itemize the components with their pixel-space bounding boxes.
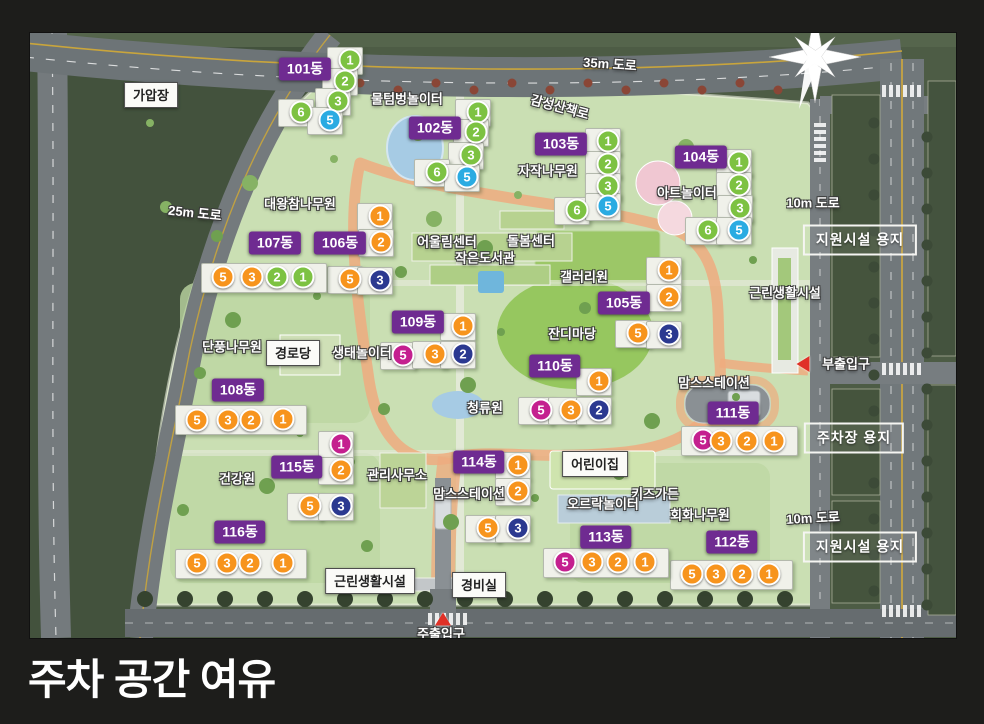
unit-circle-1: 1 (330, 433, 353, 456)
entrance-arrow-icon (797, 356, 810, 372)
unit-circle-5: 5 (212, 266, 235, 289)
map-label: 잔디마당 (548, 324, 596, 343)
unit-circle-3: 3 (424, 343, 447, 366)
building-badge-116동: 116동 (214, 521, 265, 544)
unit-circle-2: 2 (507, 480, 530, 503)
map-label: 오르락놀이터 (567, 494, 639, 513)
map-label: 맘스스테이션 (433, 484, 505, 503)
unit-circle-5: 5 (392, 344, 415, 367)
unit-circle-5: 5 (186, 552, 209, 575)
unit-circle-1: 1 (758, 563, 781, 586)
unit-circle-3: 3 (729, 197, 752, 220)
unit-circle-1: 1 (272, 552, 295, 575)
unit-circle-2: 2 (452, 343, 475, 366)
unit-circle-5: 5 (728, 219, 751, 242)
slide: 101동12365102동12365103동12365104동12365105동… (0, 0, 984, 724)
entrance-label: 부출입구 (822, 354, 870, 373)
unit-circle-2: 2 (658, 286, 681, 309)
site-plan-map: 101동12365102동12365103동12365104동12365105동… (30, 33, 956, 638)
unit-circle-1: 1 (339, 49, 362, 72)
unit-circle-1: 1 (507, 454, 530, 477)
unit-circle-5: 5 (627, 322, 650, 345)
map-label: 감성산책로 (529, 89, 592, 123)
unit-circle-2: 2 (370, 231, 393, 254)
unit-circle-3: 3 (658, 323, 681, 346)
building-badge-105동: 105동 (598, 292, 650, 315)
unit-circle-3: 3 (217, 409, 240, 432)
unit-circle-6: 6 (566, 199, 589, 222)
unit-circle-5: 5 (597, 195, 620, 218)
road-label: 25m 도로 (167, 200, 222, 224)
unit-circle-1: 1 (728, 151, 751, 174)
building-badge-109동: 109동 (392, 311, 444, 334)
map-label: 경비실 (452, 572, 506, 598)
unit-circle-1: 1 (763, 430, 786, 453)
map-label: 대왕참나무원 (264, 194, 336, 213)
unit-circle-2: 2 (588, 399, 611, 422)
unit-circle-3: 3 (705, 563, 728, 586)
unit-circle-1: 1 (588, 370, 611, 393)
map-annotations: 101동12365102동12365103동12365104동12365105동… (30, 33, 956, 638)
unit-circle-1: 1 (658, 259, 681, 282)
zone-label: 지원시설 용지 (803, 225, 917, 256)
unit-circle-1: 1 (452, 315, 475, 338)
unit-circle-1: 1 (292, 266, 315, 289)
unit-circle-5: 5 (477, 517, 500, 540)
map-label: 어린이집 (562, 451, 628, 477)
unit-circle-3: 3 (507, 517, 530, 540)
building-badge-102동: 102동 (409, 117, 461, 140)
map-label: 자작나무원 (518, 161, 578, 180)
map-label: 경로당 (266, 340, 320, 366)
building-badge-112동: 112동 (706, 531, 757, 554)
unit-circle-2: 2 (728, 174, 751, 197)
map-label: 근린생활시설 (325, 568, 415, 594)
unit-circle-5: 5 (299, 495, 322, 518)
map-label: 물텀벙놀이터 (371, 89, 443, 108)
building-badge-101동: 101동 (279, 58, 331, 81)
unit-circle-3: 3 (581, 551, 604, 574)
unit-circle-1: 1 (634, 551, 657, 574)
unit-circle-2: 2 (465, 121, 488, 144)
map-label: 근린생활시설 (749, 283, 821, 302)
zone-label: 주차장 용지 (804, 423, 904, 454)
map-label: 작은도서관 (455, 248, 515, 267)
building-badge-114동: 114동 (453, 451, 504, 474)
unit-circle-2: 2 (330, 459, 353, 482)
unit-circle-1: 1 (597, 130, 620, 153)
unit-circle-2: 2 (597, 153, 620, 176)
building-badge-108동: 108동 (212, 379, 264, 402)
unit-circle-6: 6 (290, 101, 313, 124)
unit-circle-3: 3 (241, 266, 264, 289)
building-badge-107동: 107동 (249, 232, 301, 255)
building-badge-111동: 111동 (708, 402, 759, 425)
unit-circle-3: 3 (330, 495, 353, 518)
building-badge-115동: 115동 (271, 456, 322, 479)
unit-circle-3: 3 (216, 552, 239, 575)
map-label: 맘스스테이션 (678, 373, 750, 392)
map-label: 청류원 (467, 398, 503, 417)
map-label: 단풍나무원 (202, 337, 262, 356)
unit-circle-2: 2 (736, 430, 759, 453)
unit-circle-2: 2 (607, 551, 630, 574)
unit-circle-5: 5 (339, 268, 362, 291)
map-label: 회화나무원 (670, 505, 730, 524)
unit-circle-5: 5 (186, 409, 209, 432)
unit-circle-3: 3 (710, 430, 733, 453)
road-label: 10m 도로 (786, 506, 840, 528)
map-label: 생태놀이터 (332, 343, 392, 362)
unit-circle-5: 5 (681, 563, 704, 586)
map-label: 갤러리원 (560, 267, 608, 286)
unit-circle-5: 5 (319, 109, 342, 132)
map-label: 아트놀이터 (657, 183, 717, 202)
map-label: 가압장 (124, 82, 178, 108)
unit-circle-1: 1 (272, 408, 295, 431)
map-label: 관리사무소 (367, 465, 427, 484)
road-label: 35m 도로 (583, 52, 638, 75)
building-badge-104동: 104동 (675, 146, 727, 169)
building-badge-113동: 113동 (580, 526, 631, 549)
unit-circle-5: 5 (530, 399, 553, 422)
zone-label: 지원시설 용지 (803, 532, 917, 563)
entrance-arrow-icon (435, 613, 451, 626)
unit-circle-3: 3 (369, 269, 392, 292)
unit-circle-5: 5 (456, 166, 479, 189)
unit-circle-2: 2 (266, 266, 289, 289)
road-label: 10m 도로 (786, 193, 840, 212)
unit-circle-2: 2 (240, 409, 263, 432)
unit-circle-3: 3 (560, 399, 583, 422)
map-label: 건강원 (219, 469, 255, 488)
unit-circle-2: 2 (731, 563, 754, 586)
unit-circle-6: 6 (426, 161, 449, 184)
unit-circle-6: 6 (697, 219, 720, 242)
entrance-label: 주출입구 (417, 624, 465, 639)
building-badge-106동: 106동 (314, 232, 366, 255)
building-badge-103동: 103동 (535, 133, 587, 156)
unit-circle-3: 3 (460, 144, 483, 167)
unit-circle-5: 5 (554, 551, 577, 574)
unit-circle-2: 2 (239, 552, 262, 575)
building-badge-110동: 110동 (529, 355, 580, 378)
slide-title: 주차 공간 여유 (28, 646, 275, 707)
unit-circle-1: 1 (369, 205, 392, 228)
